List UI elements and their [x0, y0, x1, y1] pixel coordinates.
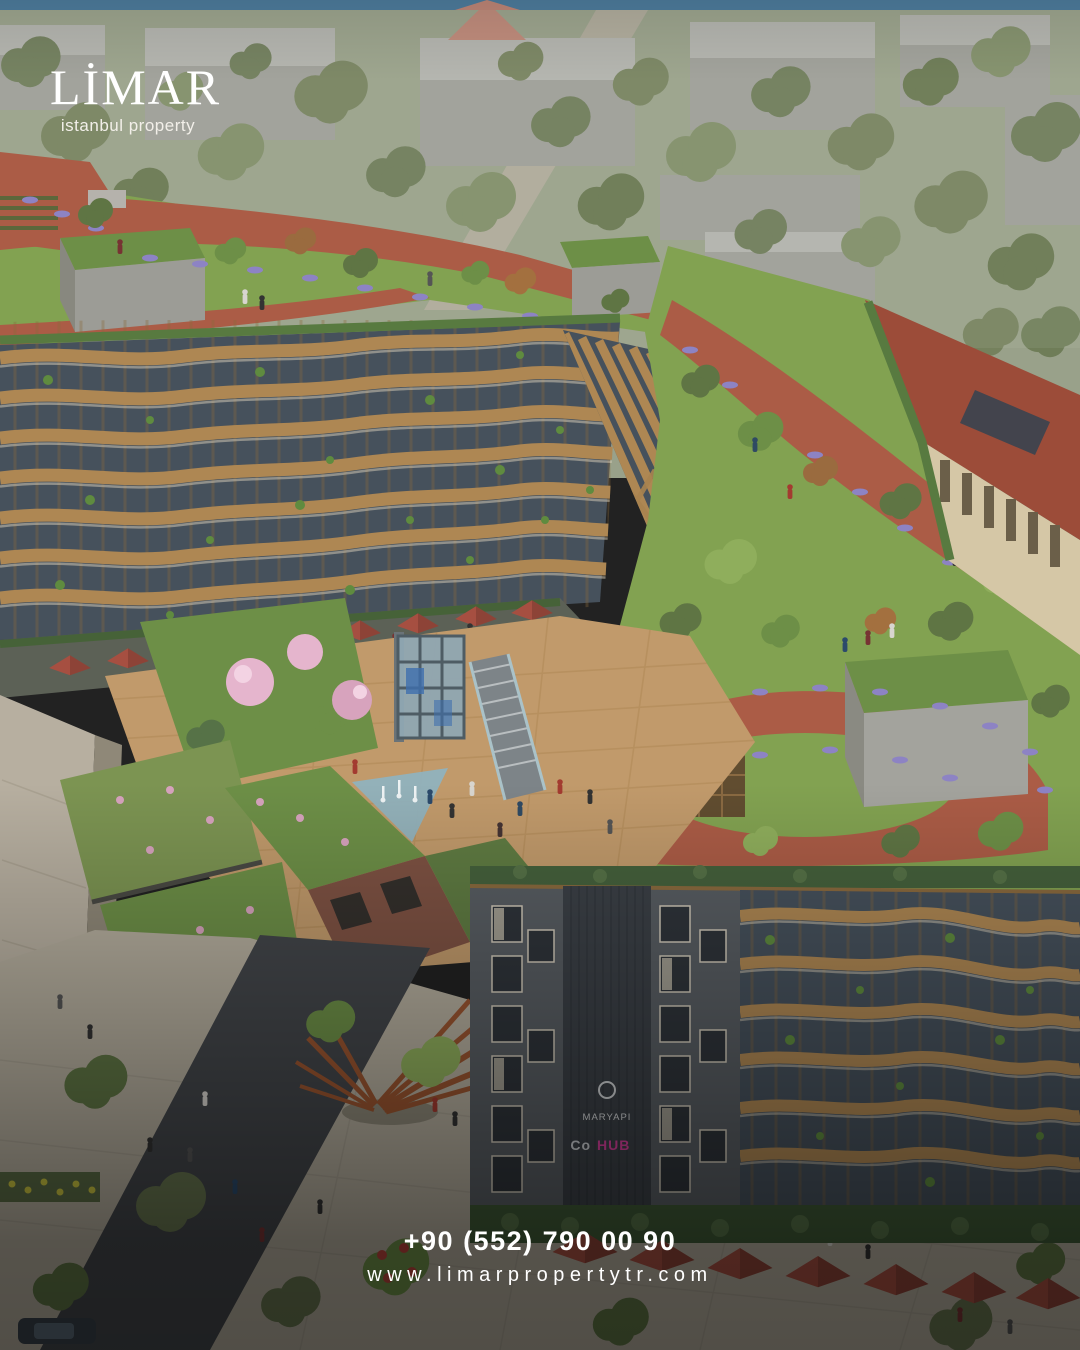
phone-number: +90 (552) 790 00 90 — [0, 1226, 1080, 1257]
limar-logo: LİMAR istanbul property — [50, 62, 206, 136]
brand-name: LİMAR — [50, 62, 206, 113]
sky-strip — [0, 0, 1080, 10]
left-wing-building — [0, 318, 620, 645]
project-sign-prefix: Co — [570, 1137, 591, 1153]
building-signage: MARYAPI Co HUB — [563, 886, 651, 1212]
roof-access-box — [60, 228, 205, 332]
aerial-render: MARYAPI Co HUB — [0, 0, 1080, 1350]
elevator-tower — [394, 632, 464, 742]
roof-access-box — [845, 650, 1028, 807]
brand-tagline: istanbul property — [50, 116, 206, 136]
flower-bed — [0, 1172, 100, 1202]
contact-block: +90 (552) 790 00 90 www.limarpropertytr.… — [0, 1226, 1080, 1287]
project-sign-text: HUB — [597, 1137, 630, 1153]
car — [18, 1318, 96, 1344]
developer-sign-text: MARYAPI — [583, 1112, 632, 1123]
website-url: www.limarpropertytr.com — [0, 1264, 1080, 1287]
marketing-image: MARYAPI Co HUB — [0, 0, 1080, 1350]
